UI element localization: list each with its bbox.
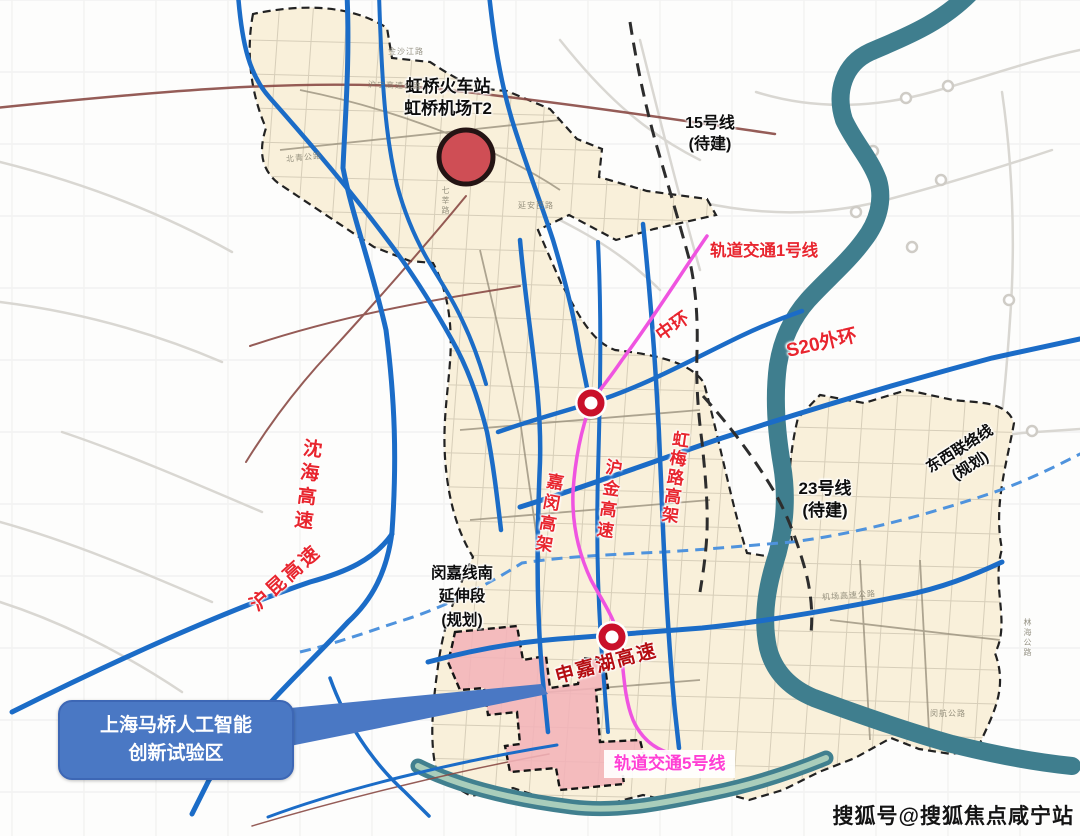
line23-status: (待建) — [780, 500, 870, 522]
line1-label: 轨道交通1号线 — [710, 241, 818, 262]
road-name-linhai: 林海公路 — [1022, 618, 1033, 658]
interchange-marker-1 — [575, 387, 607, 419]
map-canvas: 虹桥火车站 虹桥机场T2 15号线 (待建) 轨道交通1号线 中环 S20外环 … — [0, 0, 1080, 836]
line23-name: 23号线 — [780, 478, 870, 500]
road-name-qixin: 七莘路 — [440, 186, 451, 216]
minjia-extension-label: 闵嘉线南 延伸段 (规划) — [412, 562, 512, 632]
minjia-line3: (规划) — [412, 609, 512, 632]
callout-line1: 上海马桥人工智能 — [100, 712, 252, 740]
line15-label: 15号线 (待建) — [664, 114, 756, 156]
minjia-line2: 延伸段 — [412, 585, 512, 608]
road-name-jinshajiang: 金沙江路 — [388, 46, 424, 57]
line15-name: 15号线 — [664, 114, 756, 135]
maqiao-ai-zone-callout: 上海马桥人工智能 创新试验区 — [58, 700, 294, 780]
line23-label: 23号线 (待建) — [780, 478, 870, 522]
hongqiao-hub-circle — [439, 130, 493, 184]
line15-status: (待建) — [664, 135, 756, 156]
road-name-yanan-west: 延安西路 — [518, 200, 554, 211]
callout-line2: 创新试验区 — [128, 740, 223, 768]
minjia-line1: 闵嘉线南 — [412, 562, 512, 585]
line5-label: 轨道交通5号线 — [604, 750, 735, 778]
road-name-huning: 沪宁高速公路 — [368, 79, 422, 92]
sohu-watermark: 搜狐号@搜狐焦点咸宁站 — [833, 800, 1074, 830]
road-name-minhang: 闵航公路 — [930, 708, 966, 719]
hongqiao-airport-text: 虹桥机场T2 — [368, 98, 528, 120]
